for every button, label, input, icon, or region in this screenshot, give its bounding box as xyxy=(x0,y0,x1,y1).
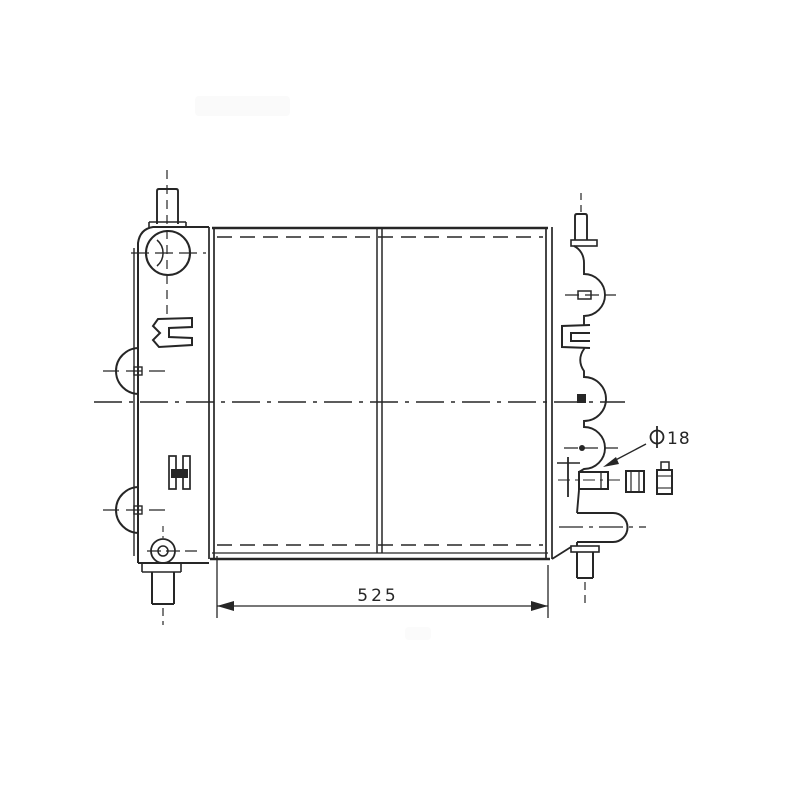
diameter-symbol xyxy=(651,426,664,448)
top-right-mounting-pin xyxy=(571,193,597,246)
dimension-value-label: 525 xyxy=(357,586,398,606)
mounting-boss-lower-right xyxy=(564,445,620,451)
scan-smudge xyxy=(405,627,431,640)
mounting-boss-lower-left xyxy=(103,469,167,533)
port-cap xyxy=(626,471,644,492)
leader-arrow xyxy=(603,457,619,467)
dimension-arrow-right xyxy=(531,601,548,611)
right-tank xyxy=(552,193,672,606)
left-h-bracket xyxy=(169,456,190,489)
bottom-right-mounting-stub xyxy=(552,546,599,606)
filler-neck xyxy=(149,170,186,314)
width-dimension: 525 xyxy=(217,556,548,618)
left-tank xyxy=(103,170,209,625)
mounting-boss-upper-right xyxy=(565,266,616,299)
diameter-callout: 18 xyxy=(603,426,691,467)
outlet-pipe xyxy=(559,513,646,542)
radiator-front-view: 525 18 xyxy=(94,96,691,640)
left-clip-bracket xyxy=(153,318,192,347)
dimension-arrow-left xyxy=(217,601,234,611)
diameter-value-label: 18 xyxy=(667,429,691,449)
bottom-left-mounting-stub xyxy=(142,563,181,625)
radiator-core xyxy=(209,227,552,559)
scan-smudge xyxy=(195,96,290,116)
left-tank-outline xyxy=(138,227,209,563)
mounting-boss-middle-right xyxy=(577,394,586,403)
right-clip-bracket xyxy=(562,325,590,348)
filler-cap-opening xyxy=(131,231,206,275)
mounting-boss-upper-left xyxy=(103,330,167,413)
scanned-technical-drawing: 525 18 xyxy=(0,0,800,800)
port-plug xyxy=(657,462,672,494)
drain-plug xyxy=(147,526,197,563)
